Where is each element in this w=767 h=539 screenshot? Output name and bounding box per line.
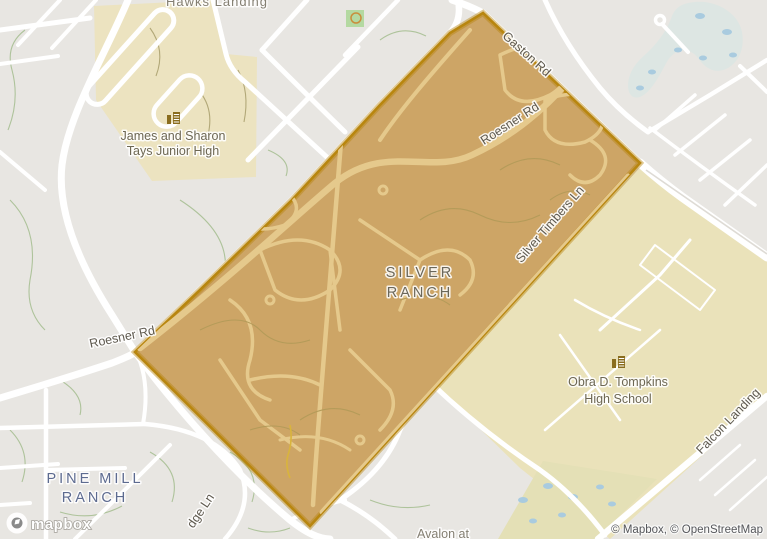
label-tays-line2: Tays Junior High: [127, 144, 219, 158]
label-hawks-landing: Hawks Landing: [166, 0, 268, 9]
label-silver-ranch-line1: SILVER: [386, 265, 455, 281]
label-tays-line1: James and Sharon: [121, 129, 226, 143]
label-silver-ranch-line2: RANCH: [387, 285, 454, 301]
label-pine-mill-line2: RANCH: [62, 490, 129, 506]
mapbox-logo-text: mapbox: [31, 516, 92, 533]
map-canvas[interactable]: Hawks Landing James and Sharon Tays Juni…: [0, 0, 767, 539]
map-viewport[interactable]: Hawks Landing James and Sharon Tays Juni…: [0, 0, 767, 539]
mapbox-logo[interactable]: mapbox: [7, 513, 92, 534]
label-pine-mill-line1: PINE MILL: [46, 471, 143, 487]
park-square: [346, 10, 364, 27]
map-attribution[interactable]: © Mapbox, © OpenStreetMap: [611, 524, 763, 536]
label-tompkins-line1: Obra D. Tompkins: [568, 375, 668, 389]
label-avalon-partial: Avalon at: [417, 527, 469, 539]
label-tompkins-line2: High School: [584, 392, 651, 406]
